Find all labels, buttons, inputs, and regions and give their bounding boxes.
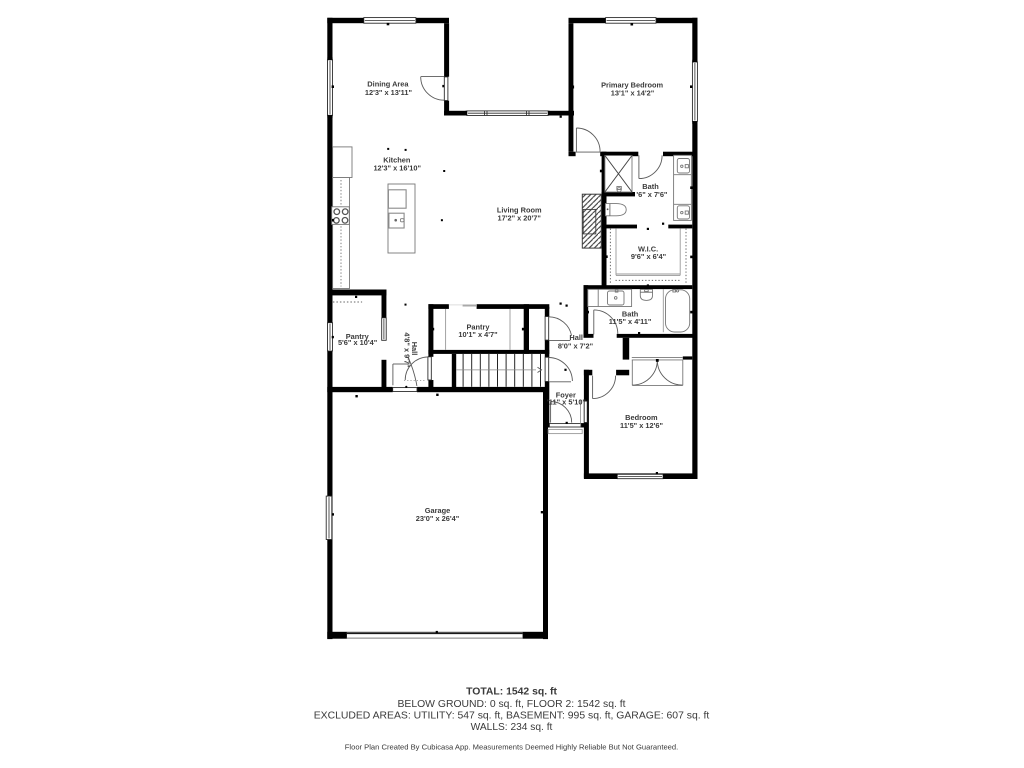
svg-text:EXCLUDED AREAS: UTILITY: 547 s: EXCLUDED AREAS: UTILITY: 547 sq. ft, BAS…: [314, 711, 710, 722]
svg-text:10'1" x 4'7": 10'1" x 4'7": [458, 330, 498, 339]
svg-text:'6" x 7'6": '6" x 7'6": [636, 190, 668, 199]
svg-text:8'0" x 7'2": 8'0" x 7'2": [558, 341, 594, 350]
svg-text:13'1" x 14'2": 13'1" x 14'2": [611, 88, 655, 97]
svg-text:23'0" x 26'4": 23'0" x 26'4": [416, 514, 460, 523]
svg-text:5'6" x 10'4": 5'6" x 10'4": [338, 338, 378, 347]
svg-text:11'5" x 4'11": 11'5" x 4'11": [609, 317, 652, 326]
svg-text:12'3" x 16'10": 12'3" x 16'10": [373, 163, 421, 172]
svg-text:12'3" x 13'11": 12'3" x 13'11": [365, 88, 413, 97]
svg-text:'11" x 5'10": '11" x 5'10": [547, 398, 586, 407]
svg-text:TOTAL: 1542 sq. ft: TOTAL: 1542 sq. ft: [466, 686, 557, 697]
svg-text:4'8" x 9'7": 4'8" x 9'7": [402, 332, 411, 368]
svg-text:Floor Plan Created By Cubicasa: Floor Plan Created By Cubicasa App. Meas…: [345, 742, 678, 751]
svg-text:WALLS: 234 sq. ft: WALLS: 234 sq. ft: [471, 722, 553, 733]
svg-text:17'2" x 20'7": 17'2" x 20'7": [497, 214, 541, 223]
svg-text:BELOW GROUND: 0 sq. ft, FLOOR: BELOW GROUND: 0 sq. ft, FLOOR 2: 1542 sq…: [397, 699, 625, 710]
svg-text:9'6" x 6'4": 9'6" x 6'4": [631, 252, 667, 261]
svg-text:11'5" x 12'6": 11'5" x 12'6": [620, 421, 663, 430]
